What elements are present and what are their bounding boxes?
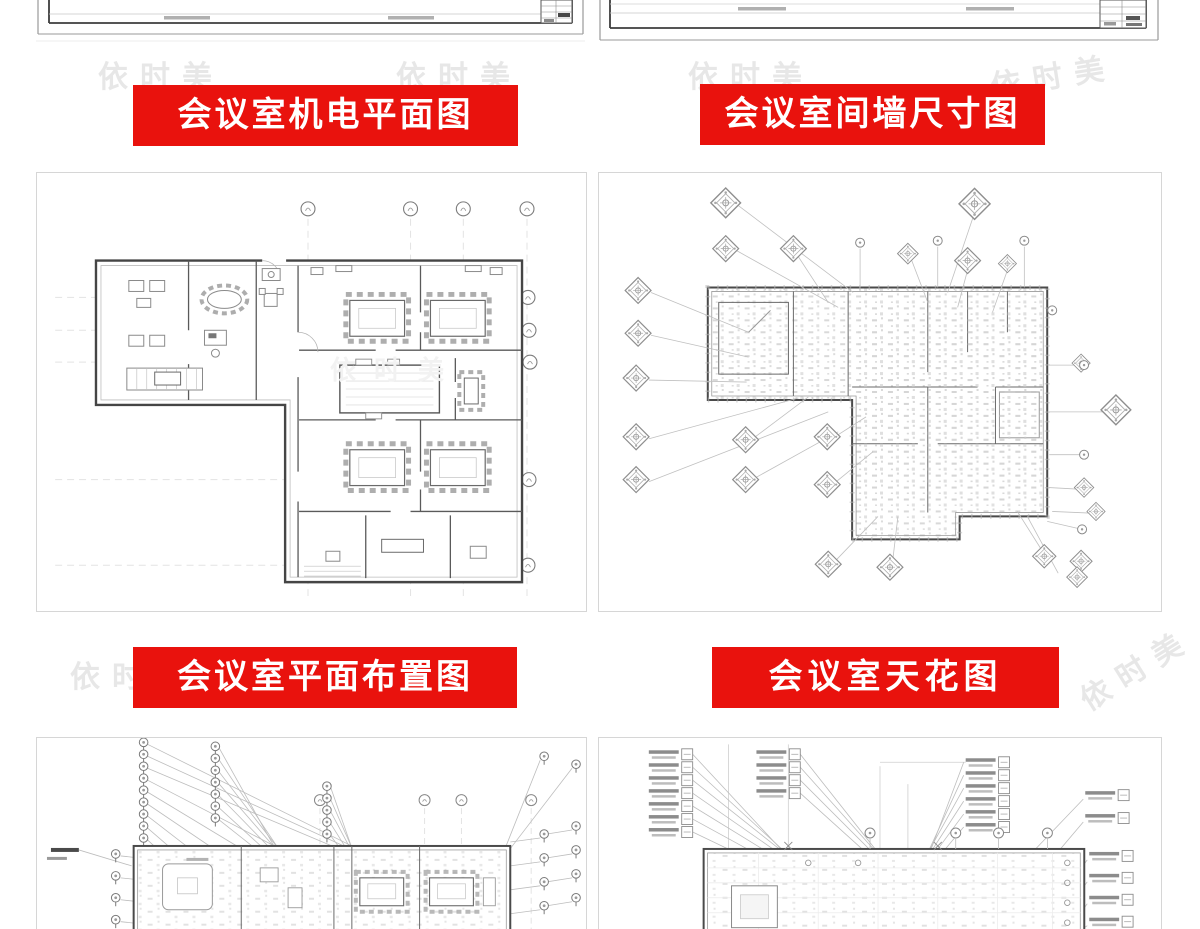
stage-block: [340, 359, 440, 419]
cad-drawing-ceiling-plan: [598, 737, 1162, 929]
cad-drawing-mep-plan: [36, 172, 587, 612]
title-block: [1100, 0, 1146, 28]
legend-marks: [47, 848, 79, 860]
cad-sheet-partial-top-right: [598, 0, 1160, 46]
banner-layout-plan: 会议室平面布置图: [133, 647, 517, 708]
cad-sheet-partial-top-left: [36, 0, 585, 44]
cad-drawing-layout-plan: [36, 737, 587, 929]
watermark: 依时美: [1070, 615, 1200, 719]
cad-drawing-wall-dimension-plan: [598, 172, 1162, 612]
grid-bubbles: [314, 795, 536, 806]
product-detail-page: 依时美 依时美 依时美 依时美 依时美 依时美 依时美 会议室机电平面图 会议室…: [0, 0, 1200, 929]
title-block: [541, 0, 572, 23]
banner-mep-plan: 会议室机电平面图: [133, 85, 518, 146]
grid-bubbles: [865, 828, 1052, 849]
banner-ceiling-plan: 会议室天花图: [712, 647, 1059, 708]
banner-wall-dim-plan: 会议室间墙尺寸图: [700, 84, 1045, 145]
